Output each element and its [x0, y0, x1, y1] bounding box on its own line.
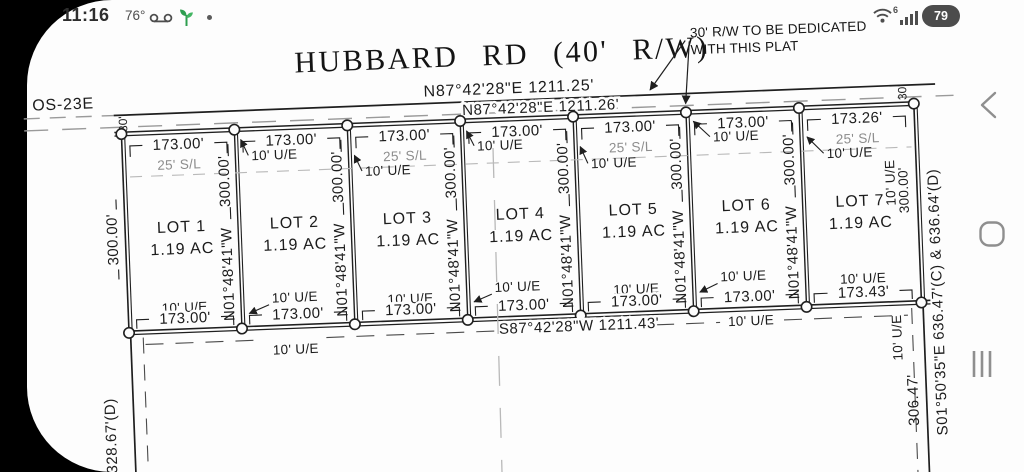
- ue-leader-text: 10' U/E: [251, 147, 297, 164]
- lot4-name: LOT 4: [495, 205, 545, 224]
- lot7-area: 1.19 AC: [829, 214, 894, 233]
- depth-label: 300.00': [215, 155, 234, 207]
- depth-label: 300.00': [103, 214, 122, 266]
- side-bearing-label: N01°48'41"W: [331, 222, 352, 317]
- lot7-bottom-dim: 173.43': [837, 283, 889, 302]
- lot7-top-dim: 173.26': [831, 109, 883, 128]
- ue-leader-text: 10' U/E: [365, 162, 411, 179]
- lot2-name: LOT 2: [270, 214, 320, 233]
- lot6-area: 1.19 AC: [715, 218, 780, 237]
- lot2-area: 1.19 AC: [263, 235, 328, 254]
- section-label: OS-23E: [32, 95, 94, 114]
- lot1-top-dim: 173.00': [152, 135, 204, 154]
- lot1-setback-label: 25' S/L: [157, 156, 201, 173]
- notification-dot-icon: [207, 15, 212, 20]
- lot1-bottom-dim: 173.00': [159, 309, 211, 328]
- ue-leader-text: 10' U/E: [591, 154, 637, 171]
- east-lower-ue-label: 10' U/E: [889, 314, 906, 360]
- side-bearing-label: N01°48'41"W: [218, 227, 239, 322]
- lot6-name: LOT 6: [721, 196, 771, 215]
- back-button[interactable]: [977, 90, 1001, 120]
- rw-width-right: 30': [895, 84, 910, 100]
- lot-group-5: 173.00' 25' S/L LOT 5 1.19 AC 10' U/E 17…: [598, 117, 669, 310]
- lot4-bottom-dim: 173.00': [498, 296, 550, 315]
- wifi-icon: [872, 7, 893, 24]
- ue-below-label: 10' U/E: [728, 312, 774, 329]
- clock: 11:16: [62, 5, 110, 26]
- lot-group-3: 173.00' 25' S/L LOT 3 1.19 AC 10' U/E 17…: [372, 126, 443, 319]
- lot3-bottom-dim: 173.00': [385, 300, 437, 319]
- depth-label: 300.00': [554, 142, 573, 194]
- lot2-bottom-dim: 173.00': [272, 305, 324, 324]
- section-dashed-line: [24, 116, 114, 119]
- west-lower-dim: 328.67'(D): [102, 398, 122, 472]
- depth-label: 300.00': [441, 147, 460, 199]
- side-bearing-label: N01°48'41"W: [670, 209, 691, 304]
- ue-leader-text: 10' U/E: [713, 128, 759, 145]
- battery-percent: 79: [934, 9, 948, 23]
- status-bar: 11:16 76° 6 79: [0, 0, 1024, 34]
- ue-leader-text: 10' U/E: [494, 278, 540, 295]
- lot3-area: 1.19 AC: [376, 231, 441, 250]
- lot1-name: LOT 1: [157, 218, 207, 237]
- note-line2: WITH THIS PLAT: [690, 38, 799, 57]
- battery-indicator: 79: [922, 5, 960, 27]
- ue-below-label: 10' U/E: [273, 341, 319, 358]
- lot-group-1: 173.00' 25' S/L LOT 1 1.19 AC 10' U/E 17…: [146, 135, 217, 328]
- east-depth-label: 300.00': [895, 167, 912, 214]
- ue-leader-text: 10' U/E: [826, 144, 872, 161]
- lot5-area: 1.19 AC: [602, 222, 667, 241]
- depth-label: 300.00': [328, 151, 347, 203]
- recent-apps-button[interactable]: [970, 349, 996, 379]
- temperature: 76°: [125, 8, 145, 23]
- lot5-setback-label: 25' S/L: [609, 139, 653, 156]
- lot1-area: 1.19 AC: [150, 240, 215, 259]
- ue-leader-text: 10' U/E: [720, 268, 766, 285]
- lot3-name: LOT 3: [382, 209, 432, 228]
- lot5-name: LOT 5: [608, 201, 658, 220]
- plat-drawing: HUBBARD RD (40' R/W) N87°42'28"E 1211.25…: [0, 0, 1024, 472]
- seedling-icon: [178, 8, 195, 27]
- voicemail-icon: [149, 12, 173, 24]
- lot5-bottom-dim: 173.00': [611, 292, 663, 311]
- south-bearing: S87°42'28"W 1211.43': [499, 315, 660, 338]
- home-button[interactable]: [978, 220, 1006, 248]
- road-name: HUBBARD RD (40' R/W): [294, 31, 710, 80]
- depth-label: 300.00': [780, 134, 799, 186]
- side-bearing-label: N01°48'41"W: [783, 205, 804, 300]
- side-bearing-label: N01°48'41"W: [557, 214, 578, 309]
- side-bearing-label: N01°48'41"W: [444, 218, 465, 313]
- lot5-top-dim: 173.00': [604, 118, 656, 137]
- depth-label: 300.00': [667, 138, 686, 190]
- ue-leader-text: 10' U/E: [477, 137, 523, 154]
- lot7-name: LOT 7: [835, 192, 885, 211]
- lot4-area: 1.19 AC: [489, 227, 554, 246]
- east-lower-dim: 306.47': [904, 374, 923, 426]
- wifi6-label: 6: [893, 5, 898, 15]
- signal-bars-icon: [900, 9, 920, 25]
- lot6-bottom-dim: 173.00': [724, 287, 776, 306]
- lot3-top-dim: 173.00': [378, 126, 430, 145]
- east-boundary-bearing: S01°50'35"E 636.47'(C) & 636.64'(D): [924, 168, 951, 435]
- ue-leader-text: 10' U/E: [272, 289, 318, 306]
